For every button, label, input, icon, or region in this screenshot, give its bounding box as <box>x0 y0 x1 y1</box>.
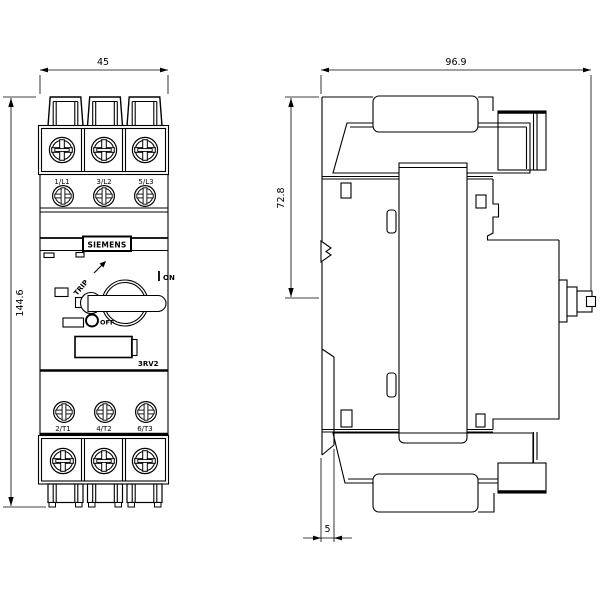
arrowhead-right <box>160 68 168 73</box>
small-screw-top-2 <box>94 186 115 207</box>
technical-drawing: 45 144.6 <box>0 0 600 600</box>
arrowhead-up <box>8 98 13 107</box>
face-slot-1 <box>44 253 54 258</box>
top-terminal-block <box>39 126 169 175</box>
arrowhead-down <box>8 497 13 506</box>
terminal-label-2T1: 2/T1 <box>55 425 71 433</box>
terminal-label-4T2: 4/T2 <box>96 425 112 433</box>
face-slot-2 <box>76 253 84 258</box>
strip-offset-value: 5 <box>324 524 330 535</box>
off-position-mark <box>86 315 98 327</box>
switch-face: TRIP ON OFF 3RV2 <box>44 253 175 369</box>
terminal-label-6T3: 6/T3 <box>137 425 153 433</box>
terminal-label-5L3: 5/L3 <box>138 178 153 186</box>
small-screw-bottom-3 <box>136 402 157 423</box>
top-tab-3 <box>127 97 162 126</box>
front-width-dimension: 45 <box>40 57 168 94</box>
side-depth-value: 96.9 <box>445 57 466 68</box>
bottom-tab-3 <box>127 484 162 507</box>
arrowhead-right <box>583 68 591 73</box>
top-tab-1 <box>48 97 83 126</box>
model-label: 3RV2 <box>138 360 159 368</box>
screw-3L2 <box>91 137 116 162</box>
center-column <box>399 163 467 443</box>
small-screw-top-1 <box>53 186 74 207</box>
brand-label: SIEMENS <box>88 241 127 250</box>
screw-6T3 <box>132 448 157 473</box>
screw-1L1 <box>49 137 74 162</box>
bottom-terminal-block <box>39 436 169 485</box>
screw-4T2 <box>91 448 116 473</box>
bottom-tab-1 <box>48 484 83 507</box>
output-terminal-row: 2/T1 4/T2 6/T3 <box>54 402 157 433</box>
knob-handle[interactable] <box>88 296 166 312</box>
screw-5L3 <box>132 137 157 162</box>
small-screw-bottom-2 <box>95 402 116 423</box>
screw-2T1 <box>50 448 75 473</box>
small-screw-top-3 <box>135 186 156 207</box>
face-slot-4 <box>63 318 84 327</box>
input-terminal-row: 1/L1 3/L2 5/L3 <box>53 178 156 206</box>
side-upper-height-dimension: 72.8 <box>276 97 319 298</box>
side-view: 96.9 72.8 <box>276 57 596 542</box>
rating-label-frame <box>75 337 132 358</box>
arrowhead-right-in <box>313 536 321 541</box>
bottom-tab-2 <box>88 484 123 507</box>
knob-shaft-mid <box>567 287 577 316</box>
bottom-terminal-cover <box>373 474 478 512</box>
arrowhead-left <box>40 68 48 73</box>
knob-shaft-base <box>559 280 567 322</box>
small-screw-bottom-1 <box>54 402 75 423</box>
arrowhead-up <box>288 98 293 107</box>
brand-band: SIEMENS <box>40 237 168 252</box>
on-label: ON <box>163 274 175 282</box>
arrowhead-left <box>321 68 329 73</box>
terminal-label-3L2: 3/L2 <box>96 178 111 186</box>
arrowhead-down <box>288 288 293 297</box>
face-slot-3 <box>55 288 68 297</box>
front-view: 45 144.6 <box>3 57 175 507</box>
front-width-value: 45 <box>97 57 109 68</box>
terminal-label-1L1: 1/L1 <box>54 178 69 186</box>
front-block <box>488 179 596 430</box>
top-tab-2 <box>88 97 123 126</box>
dimension-drawing-page: 45 144.6 <box>0 0 600 600</box>
knob-shaft-tip <box>587 297 596 307</box>
strip-offset-dimension: 5 <box>303 449 352 542</box>
front-height-value: 144.6 <box>15 289 26 316</box>
top-terminal-cover <box>373 96 478 132</box>
arrowhead-left-in <box>334 536 342 541</box>
side-upper-height-value: 72.8 <box>276 187 287 208</box>
off-label: OFF <box>100 319 114 327</box>
din-clip <box>321 241 331 262</box>
front-strip <box>321 97 334 455</box>
